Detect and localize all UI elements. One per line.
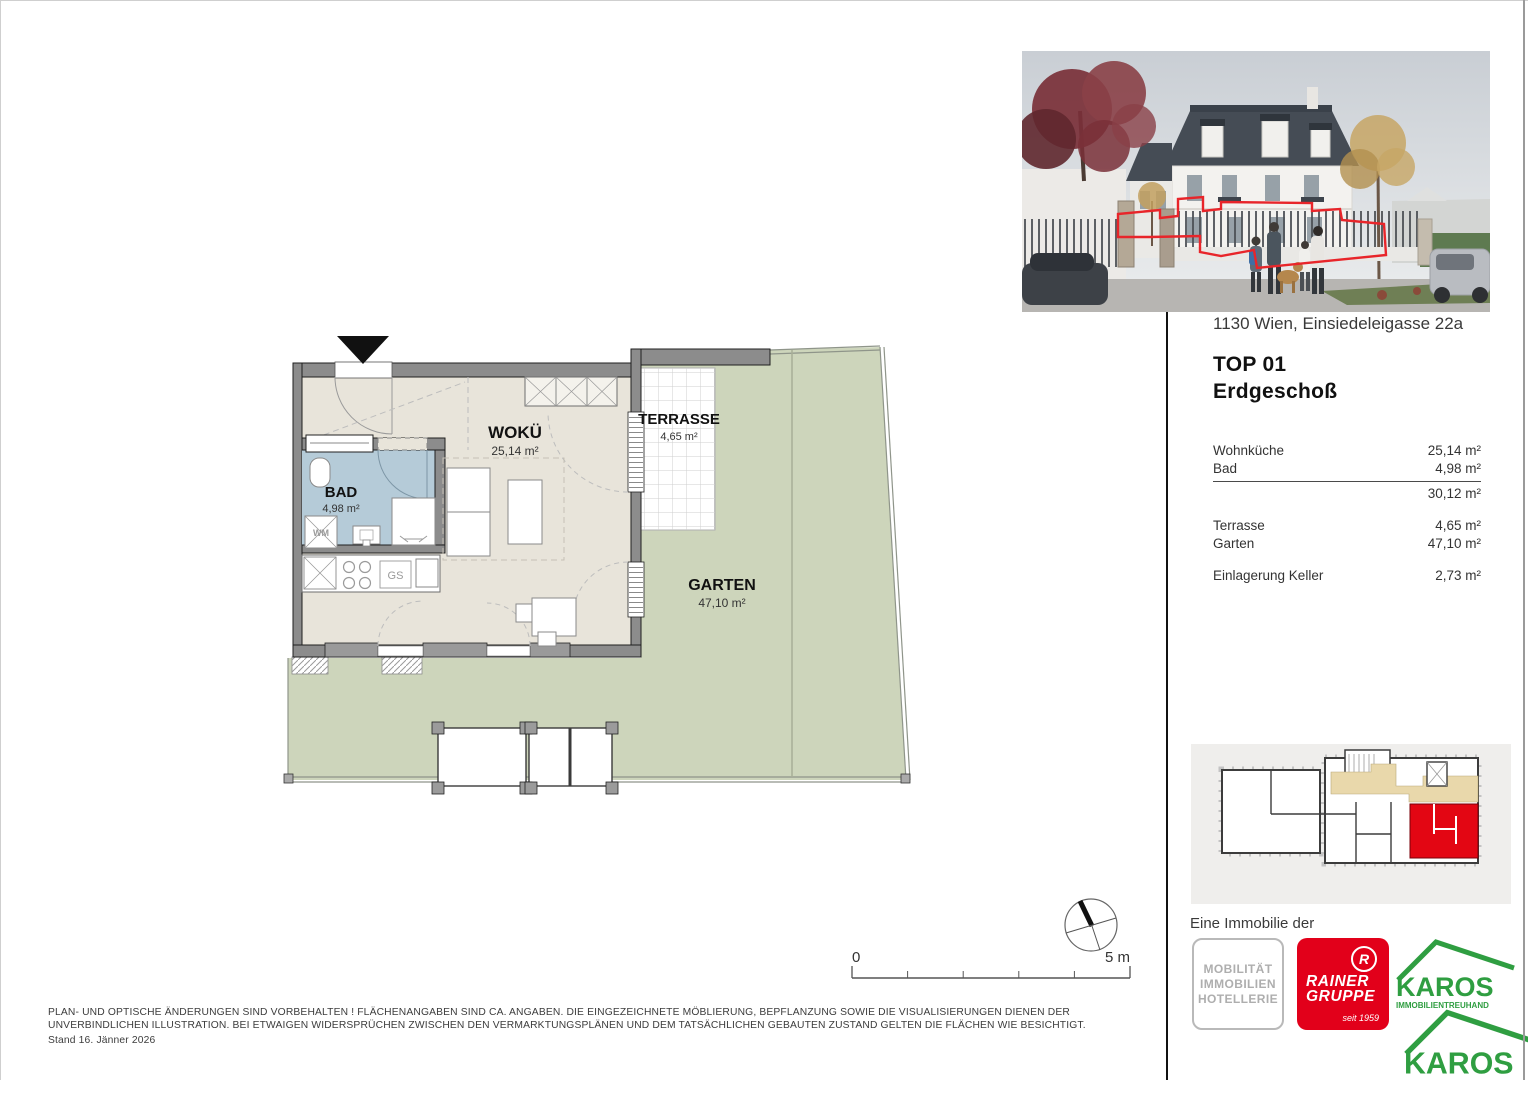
rainer-name: RAINER GRUPPE	[1306, 974, 1375, 1004]
table-row: Einlagerung Keller 2,73 m²	[1213, 567, 1481, 585]
bath-door-opening	[378, 438, 427, 450]
toilet-fixture	[310, 458, 330, 487]
shrub	[1377, 290, 1387, 300]
label-wokue-area: 25,14 m²	[491, 444, 538, 458]
row-value: 2,73 m²	[1435, 567, 1481, 585]
panel-divider	[1166, 312, 1168, 1080]
mobilitaet-line: IMMOBILIEN	[1200, 977, 1276, 992]
label-bad: BAD	[325, 484, 358, 501]
row-value: 4,98 m²	[1435, 460, 1481, 478]
table-row: Bad 4,98 m²	[1213, 460, 1481, 478]
table-row: Wohnküche 25,14 m²	[1213, 442, 1481, 460]
label-garten: GARTEN	[688, 577, 756, 594]
kitchen-counter: GS	[302, 555, 440, 592]
rainer-name-line: GRUPPE	[1306, 989, 1375, 1004]
floorplan-drawing: WM GS	[280, 330, 920, 800]
label-bad-area: 4,98 m²	[322, 503, 360, 515]
shrub	[1413, 287, 1421, 295]
sink-fixture	[353, 526, 380, 546]
label-terrasse-area: 4,65 m²	[660, 431, 698, 443]
row-label: Einlagerung Keller	[1213, 567, 1323, 585]
unit-title: TOP 01 Erdgeschoß	[1213, 351, 1337, 405]
svg-text:GS: GS	[388, 570, 404, 582]
row-label: Garten	[1213, 535, 1254, 553]
row-label: Wohnküche	[1213, 442, 1284, 460]
shower-fixture	[392, 498, 435, 545]
disclaimer-line: PLAN- UND OPTISCHE ÄNDERUNGEN SIND VORBE…	[48, 1006, 1156, 1019]
unit-floor: Erdgeschoß	[1213, 378, 1337, 405]
garden-structures	[432, 722, 618, 794]
key-plan	[1191, 744, 1511, 904]
silver-car	[1430, 249, 1490, 303]
wardrobe	[525, 377, 617, 406]
branding-lead-in: Eine Immobilie der	[1190, 915, 1314, 932]
svg-text:WM: WM	[313, 528, 329, 538]
label-garten-area: 47,10 m²	[698, 596, 745, 610]
rainer-gruppe-logo: R RAINER GRUPPE seit 1959	[1297, 938, 1389, 1030]
karos-wordmark: KAROS	[1396, 972, 1494, 1002]
rainer-r-mark-icon: R	[1351, 946, 1377, 972]
subtotal-value: 30,12 m²	[1428, 485, 1481, 503]
stone-pillar-1	[1118, 201, 1134, 267]
table-row: Garten 47,10 m²	[1213, 535, 1481, 553]
washing-machine: WM	[305, 516, 337, 548]
bottom-windows	[325, 643, 570, 657]
row-label: Bad	[1213, 460, 1237, 478]
building-photo	[1022, 51, 1490, 312]
row-label: Terrasse	[1213, 517, 1265, 535]
address: 1130 Wien, Einsiedeleigasse 22a	[1213, 314, 1463, 334]
rainer-name-line: RAINER	[1306, 974, 1375, 989]
karos-logo: KAROS IMMOBILIENTREUHAND	[1396, 938, 1516, 1016]
entry-door-opening	[335, 362, 392, 378]
mobilitaet-logo: MOBILITÄT IMMOBILIEN HOTELLERIE	[1192, 938, 1284, 1030]
row-value: 47,10 m²	[1428, 535, 1481, 553]
label-terrasse: TERRASSE	[638, 411, 720, 428]
unit-number: TOP 01	[1213, 351, 1337, 378]
page-right-border	[1523, 0, 1525, 1080]
area-table: Wohnküche 25,14 m² Bad 4,98 m² 30,12 m² …	[1213, 442, 1481, 585]
row-value: 4,65 m²	[1435, 517, 1481, 535]
scale-start-label: 0	[852, 949, 860, 966]
row-value: 25,14 m²	[1428, 442, 1481, 460]
disclaimer-line: UNVERBINDLICHEN ILLUSTRATION. BEI ETWAIG…	[48, 1019, 1156, 1032]
karos-logo-partial: KAROS	[1404, 1008, 1528, 1093]
karos-wordmark: KAROS	[1404, 1047, 1514, 1080]
kitchen-sink	[416, 559, 438, 587]
bathroom: WM	[302, 435, 445, 553]
entry-arrow-icon	[337, 336, 389, 364]
table-row: Terrasse 4,65 m²	[1213, 517, 1481, 535]
rainer-tagline: seit 1959	[1342, 1013, 1379, 1023]
label-wokue: WOKÜ	[488, 423, 542, 442]
compass-icon	[1059, 893, 1123, 957]
mobilitaet-line: HOTELLERIE	[1198, 992, 1278, 1007]
mobilitaet-line: MOBILITÄT	[1204, 962, 1273, 977]
disclaimer-stand: Stand 16. Jänner 2026	[48, 1034, 1156, 1047]
table-subtotal-row: 30,12 m²	[1213, 481, 1481, 503]
key-plan-unit-highlight	[1410, 804, 1478, 858]
disclaimer: PLAN- UND OPTISCHE ÄNDERUNGEN SIND VORBE…	[48, 1006, 1156, 1047]
